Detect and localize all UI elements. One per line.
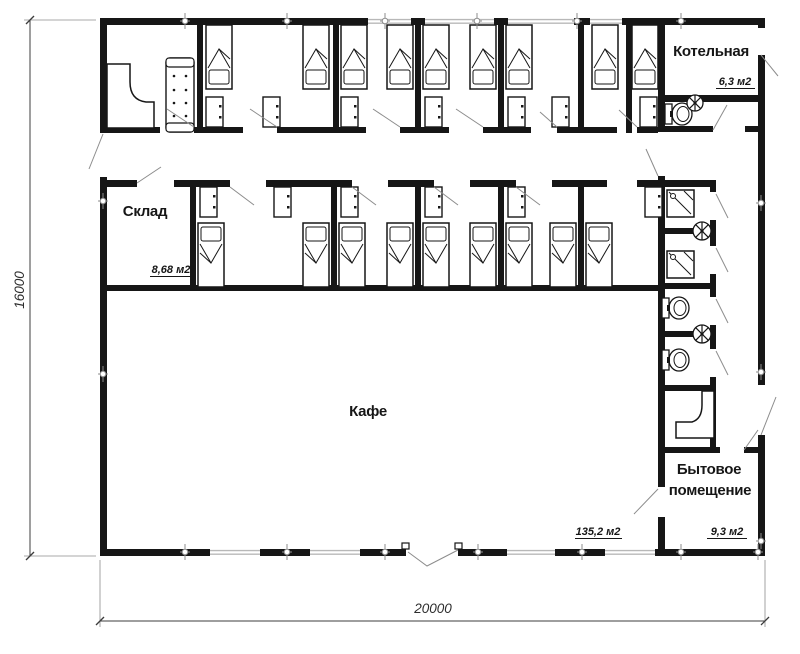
door-opening xyxy=(710,192,716,220)
axis-marker xyxy=(380,544,390,560)
wardrobe-icon xyxy=(274,187,291,217)
axis-marker xyxy=(676,13,686,29)
bed-icon xyxy=(550,223,576,287)
wardrobe-icon xyxy=(425,97,442,127)
wall-segment xyxy=(658,283,716,289)
wall-segment xyxy=(637,127,658,133)
wall-segment xyxy=(331,180,337,291)
wardrobe-icon xyxy=(640,97,657,127)
wall-segment xyxy=(498,25,504,133)
bed-icon xyxy=(470,223,496,287)
door-opening xyxy=(710,297,716,325)
door-swing-line xyxy=(634,489,658,514)
door-swing-line xyxy=(713,105,727,130)
bed-icon xyxy=(586,223,612,287)
wall-segment xyxy=(277,127,366,133)
wardrobe-icon xyxy=(263,97,280,127)
room-label-storage: Склад xyxy=(123,203,168,220)
area-label-cafe: 135,2 м2 xyxy=(576,526,621,538)
bed-icon xyxy=(387,223,413,287)
wall-segment xyxy=(578,180,584,291)
wardrobe-icon xyxy=(200,187,217,217)
dimension-label-width: 20000 xyxy=(413,601,452,616)
wall-segment xyxy=(745,126,765,132)
door-swing-line xyxy=(646,149,658,176)
floor-plan-page: Котельная 6,3 м2 Склад 8,68 м2 Кафе 135,… xyxy=(0,0,800,654)
room-label-cafe: Кафе xyxy=(349,403,387,420)
axis-marker xyxy=(676,544,686,560)
axis-marker xyxy=(180,13,190,29)
wardrobe-icon xyxy=(206,97,223,127)
wall-segment xyxy=(333,25,339,133)
axis-marker xyxy=(180,544,190,560)
bed-icon xyxy=(339,223,365,287)
wardrobe-icon xyxy=(552,97,569,127)
wardrobe-icon xyxy=(645,187,662,217)
bed-icon xyxy=(632,25,658,89)
wall-segment xyxy=(658,126,713,132)
wall-segment xyxy=(658,385,716,391)
wall-segment xyxy=(415,180,421,291)
wardrobe-icon xyxy=(341,187,358,217)
wall-segment xyxy=(658,447,720,453)
wall-segment xyxy=(400,127,449,133)
bed-icon xyxy=(592,25,618,89)
entrance-opening xyxy=(406,549,458,556)
door-opening xyxy=(758,28,765,55)
wall-segment xyxy=(266,180,352,187)
area-label-storage: 8,68 м2 xyxy=(152,264,191,276)
door-swing-line xyxy=(716,299,728,323)
shower-icon xyxy=(667,190,694,217)
wall-segment xyxy=(415,25,421,133)
wall-segment xyxy=(197,25,203,133)
kitchen-counter-icon xyxy=(676,391,714,438)
room-label-utility-1: Бытовое xyxy=(677,461,741,478)
wall-segment xyxy=(190,180,196,291)
door-swing-line xyxy=(137,167,161,183)
reception-desk-icon xyxy=(107,64,154,128)
wardrobe-icon xyxy=(341,97,358,127)
bed-icon xyxy=(423,25,449,89)
wall-segment xyxy=(557,127,617,133)
fan-icon xyxy=(693,325,711,343)
door-opening xyxy=(658,487,665,517)
room-label-utility-2: помещение xyxy=(669,482,751,499)
floor-plan-drawing: Котельная 6,3 м2 Склад 8,68 м2 Кафе 135,… xyxy=(0,0,800,654)
wall-segment xyxy=(483,127,531,133)
door-opening xyxy=(710,246,716,274)
area-label-utility: 9,3 м2 xyxy=(711,526,744,538)
axis-marker xyxy=(282,13,292,29)
wall-segment xyxy=(658,25,665,132)
area-label-boiler: 6,3 м2 xyxy=(719,76,752,88)
bed-icon xyxy=(506,25,532,89)
door-swing-line xyxy=(373,109,400,127)
door-opening xyxy=(710,349,716,377)
axis-marker xyxy=(473,544,483,560)
wall-segment xyxy=(388,180,434,187)
door-swing-line xyxy=(716,351,728,375)
toilet-icon xyxy=(662,349,689,371)
door-swing-line xyxy=(716,248,728,272)
door-post xyxy=(402,543,409,549)
wall-segment xyxy=(498,180,504,291)
fan-icon xyxy=(687,95,703,111)
fan-icon xyxy=(693,222,711,240)
wall-segment xyxy=(470,180,516,187)
door-swing-line xyxy=(230,187,254,205)
wall-segment xyxy=(578,25,584,133)
wall-segment xyxy=(637,180,716,187)
toilet-icon xyxy=(662,297,689,319)
wall-segment xyxy=(174,180,230,187)
bed-icon xyxy=(506,223,532,287)
bed-icon xyxy=(303,223,329,287)
door-post xyxy=(455,543,462,549)
bed-icon xyxy=(198,223,224,287)
bed-icon xyxy=(341,25,367,89)
wall-segment xyxy=(665,95,765,102)
shower-icon xyxy=(667,251,694,278)
wardrobe-icon xyxy=(508,97,525,127)
axis-marker xyxy=(282,544,292,560)
door-swing-line xyxy=(456,109,483,127)
room-label-boiler: Котельная xyxy=(673,43,749,60)
bed-icon xyxy=(387,25,413,89)
wall-segment xyxy=(194,127,243,133)
axis-marker xyxy=(577,544,587,560)
wall-segment xyxy=(744,447,765,453)
wall-segment xyxy=(100,180,137,187)
door-swing-line xyxy=(716,194,728,218)
wall-segment xyxy=(100,285,664,291)
sofa-icon xyxy=(166,58,194,132)
bed-icon xyxy=(470,25,496,89)
bed-icon xyxy=(206,25,232,89)
dimension-label-height: 16000 xyxy=(12,271,27,309)
bed-icon xyxy=(303,25,329,89)
bed-icon xyxy=(423,223,449,287)
